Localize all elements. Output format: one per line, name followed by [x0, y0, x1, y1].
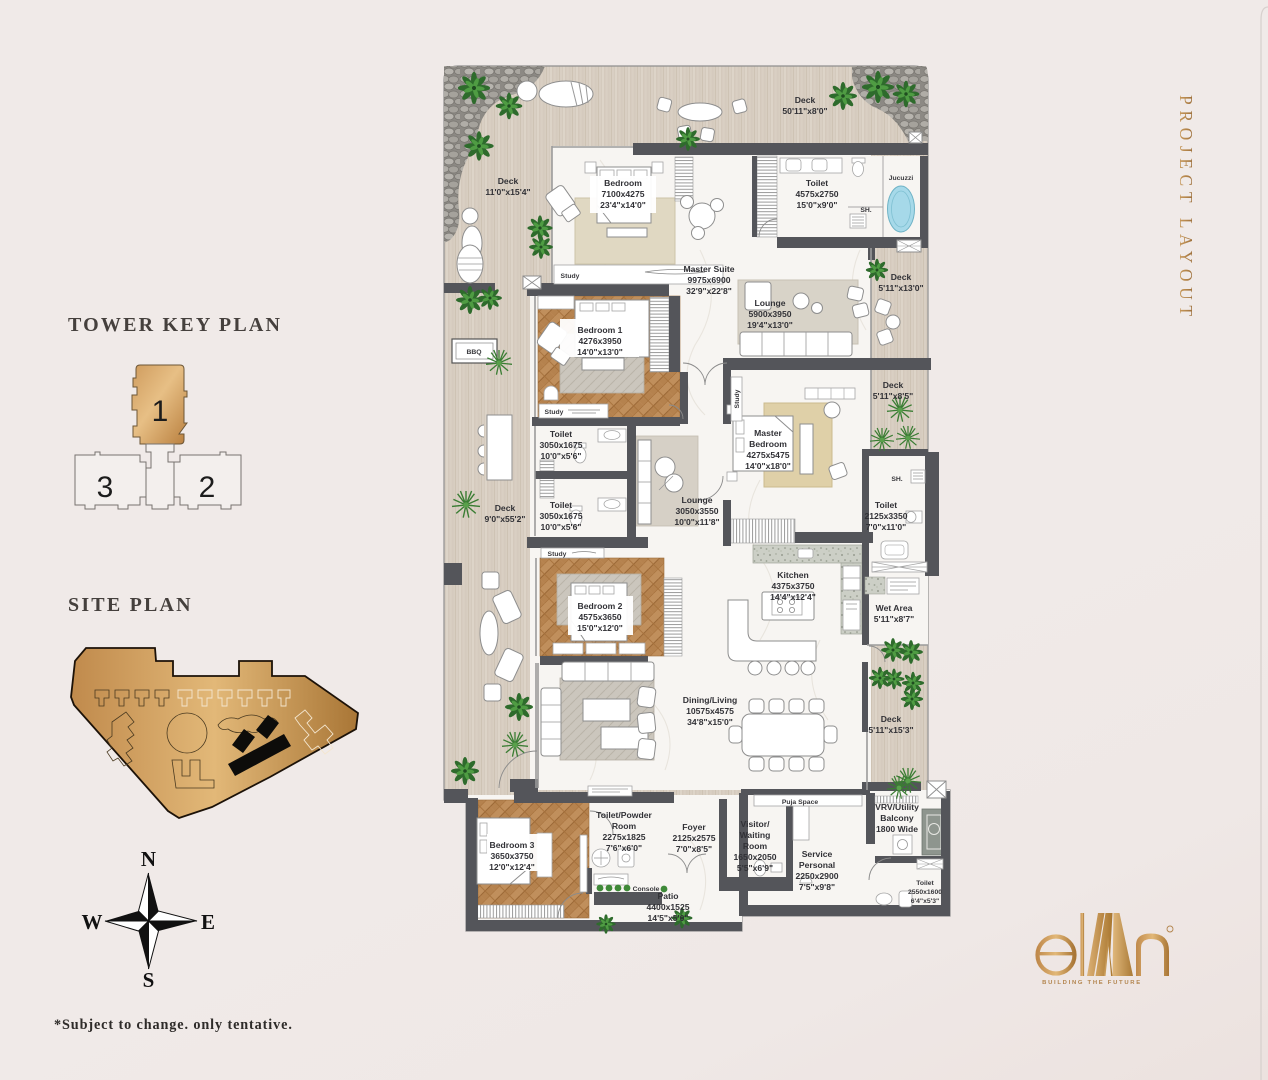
- svg-text:Jucuzzi: Jucuzzi: [889, 175, 914, 182]
- svg-text:Bedroom 33650x375012'0"x12'4": Bedroom 33650x375012'0"x12'4": [489, 840, 535, 872]
- svg-text:SH.: SH.: [891, 476, 902, 483]
- svg-text:E: E: [201, 910, 215, 934]
- svg-text:W: W: [82, 910, 103, 934]
- svg-text:BUILDING THE FUTURE: BUILDING THE FUTURE: [1042, 980, 1142, 986]
- svg-text:1: 1: [152, 395, 169, 428]
- svg-text:Bedroom 24575x365015'0"x12'0": Bedroom 24575x365015'0"x12'0": [577, 601, 623, 633]
- svg-text:3: 3: [97, 471, 114, 504]
- svg-text:Study: Study: [545, 409, 564, 416]
- svg-text:SITE PLAN: SITE PLAN: [68, 594, 193, 616]
- svg-text:2: 2: [199, 471, 216, 504]
- svg-text:Bedroom7100x427523'4"x14'0": Bedroom7100x427523'4"x14'0": [600, 178, 646, 210]
- svg-text:VRV/UtilityBalcony1800 Wide: VRV/UtilityBalcony1800 Wide: [875, 802, 919, 834]
- svg-text:Study: Study: [561, 273, 580, 280]
- svg-text:*Subject to change. only tenta: *Subject to change. only tentative.: [54, 1017, 293, 1033]
- svg-text:TOWER KEY PLAN: TOWER KEY PLAN: [68, 314, 282, 336]
- svg-text:Puja Space: Puja Space: [782, 799, 818, 806]
- svg-text:SH.: SH.: [860, 207, 871, 214]
- svg-text:Dining/Living10575x457534'8"x1: Dining/Living10575x457534'8"x15'0": [683, 695, 737, 727]
- svg-text:N: N: [141, 847, 156, 871]
- svg-text:PROJECT LAYOUT: PROJECT LAYOUT: [1176, 95, 1196, 322]
- svg-text:Console: Console: [633, 886, 660, 893]
- svg-text:Master Suite9975x690032'9"x22': Master Suite9975x690032'9"x22'8": [683, 264, 734, 296]
- svg-text:Bedroom 14276x395014'0"x13'0": Bedroom 14276x395014'0"x13'0": [577, 325, 623, 357]
- svg-text:BBQ: BBQ: [466, 349, 481, 356]
- svg-text:Study: Study: [548, 551, 567, 558]
- svg-text:ServicePersonal2250x29007'5"x9: ServicePersonal2250x29007'5"x9'8": [795, 849, 838, 892]
- svg-text:Wet Area5'11"x8'7": Wet Area5'11"x8'7": [874, 603, 914, 624]
- svg-text:Study: Study: [734, 389, 741, 408]
- svg-text:S: S: [143, 968, 155, 992]
